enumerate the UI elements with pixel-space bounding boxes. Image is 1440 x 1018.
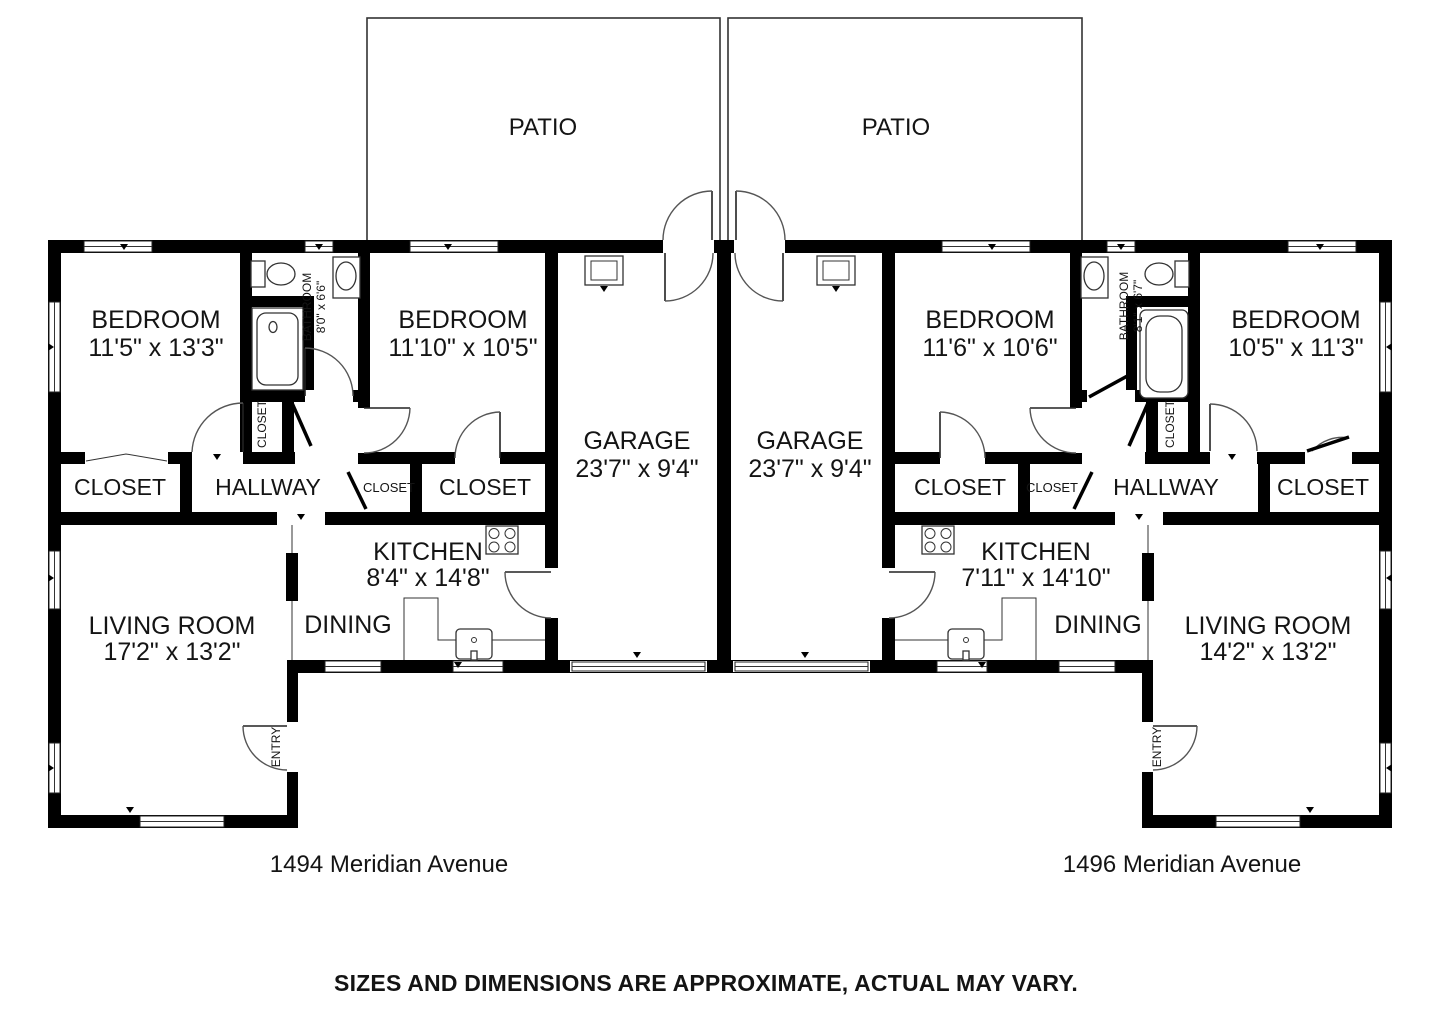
bathroom-right-dims: 8'1" x 6'7" xyxy=(1131,280,1145,332)
closet-hallway-right: CLOSET xyxy=(1026,480,1078,495)
dining-right: DINING xyxy=(1054,611,1142,639)
hallway-left: HALLWAY xyxy=(215,474,321,500)
garage-right-dims: 23'7" x 9'4" xyxy=(748,455,871,483)
kitchen-left-name: KITCHEN xyxy=(373,538,483,566)
bedroom1-right-name: BEDROOM xyxy=(925,306,1054,334)
disclaimer: SIZES AND DIMENSIONS ARE APPROXIMATE, AC… xyxy=(334,970,1078,996)
floor-plan-page: PATIO PATIO BEDROOM 11'5" x 13'3" BEDROO… xyxy=(0,0,1440,1018)
bedroom2-left-dims: 11'10" x 10'5" xyxy=(388,334,537,362)
bedroom2-right-name: BEDROOM xyxy=(1231,306,1360,334)
garage-left-name: GARAGE xyxy=(584,427,691,455)
closet-bedroom2-left: CLOSET xyxy=(439,474,531,500)
floor-plan-drawing: PATIO PATIO BEDROOM 11'5" x 13'3" BEDROO… xyxy=(0,0,1440,1018)
closet-bedroom2-right: CLOSET xyxy=(1277,474,1369,500)
living-right-name: LIVING ROOM xyxy=(1185,612,1352,640)
closet-bedroom1-left: CLOSET xyxy=(74,474,166,500)
living-left-name: LIVING ROOM xyxy=(89,612,256,640)
walls xyxy=(48,240,1392,828)
garage-left-dims: 23'7" x 9'4" xyxy=(575,455,698,483)
bedroom1-left-dims: 11'5" x 13'3" xyxy=(88,334,223,362)
closet-bathroom-left: CLOSET xyxy=(255,399,269,448)
hallway-right: HALLWAY xyxy=(1113,474,1219,500)
toilet-icon xyxy=(1175,261,1189,287)
entry-right: ENTRY xyxy=(1150,727,1164,767)
garage-right-name: GARAGE xyxy=(757,427,864,455)
living-left-dims: 17'2" x 13'2" xyxy=(103,638,240,666)
bedroom2-right-dims: 10'5" x 11'3" xyxy=(1228,334,1363,362)
bedroom1-right-dims: 11'6" x 10'6" xyxy=(922,334,1057,362)
patio-label-left: PATIO xyxy=(509,114,577,141)
bathroom-left-name: BATHROOM xyxy=(300,273,314,341)
kitchen-right-dims: 7'11" x 14'10" xyxy=(961,564,1110,592)
closet-hallway-left: CLOSET xyxy=(363,480,415,495)
closet-bathroom-right: CLOSET xyxy=(1163,399,1177,448)
entry-left: ENTRY xyxy=(269,727,283,767)
dining-left: DINING xyxy=(304,611,392,639)
bedroom2-left-name: BEDROOM xyxy=(398,306,527,334)
address-right: 1496 Meridian Avenue xyxy=(1063,851,1301,878)
bathroom-left-dims: 8'0" x 6'6" xyxy=(314,281,328,333)
patio-label-right: PATIO xyxy=(862,114,930,141)
address-left: 1494 Meridian Avenue xyxy=(270,851,508,878)
bedroom1-left-name: BEDROOM xyxy=(91,306,220,334)
closet-bedroom1-right: CLOSET xyxy=(914,474,1006,500)
kitchen-right-name: KITCHEN xyxy=(981,538,1091,566)
living-right-dims: 14'2" x 13'2" xyxy=(1199,638,1336,666)
kitchen-left-dims: 8'4" x 14'8" xyxy=(366,564,489,592)
patios xyxy=(367,18,1082,242)
toilet-icon xyxy=(251,261,265,287)
bathroom-right-name: BATHROOM xyxy=(1117,272,1131,340)
